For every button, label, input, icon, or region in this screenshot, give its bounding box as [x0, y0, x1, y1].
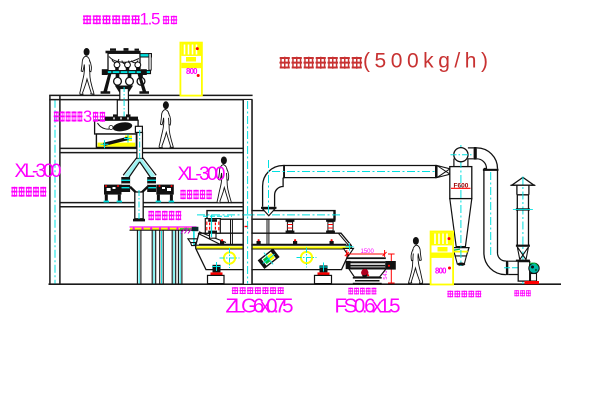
svg-text:ZLG6x0.75: ZLG6x0.75 — [226, 295, 294, 318]
svg-text:800: 800 — [435, 267, 447, 276]
svg-text:(500kg/h): (500kg/h) — [363, 50, 488, 73]
svg-text:800: 800 — [186, 67, 198, 76]
svg-text:3: 3 — [83, 108, 92, 126]
svg-text:1500: 1500 — [361, 249, 375, 255]
svg-text:XL-300: XL-300 — [178, 164, 226, 185]
svg-text:XL-300: XL-300 — [15, 161, 62, 182]
svg-text:1.5: 1.5 — [140, 10, 161, 29]
svg-text:FS0.6x1.5: FS0.6x1.5 — [335, 295, 401, 318]
